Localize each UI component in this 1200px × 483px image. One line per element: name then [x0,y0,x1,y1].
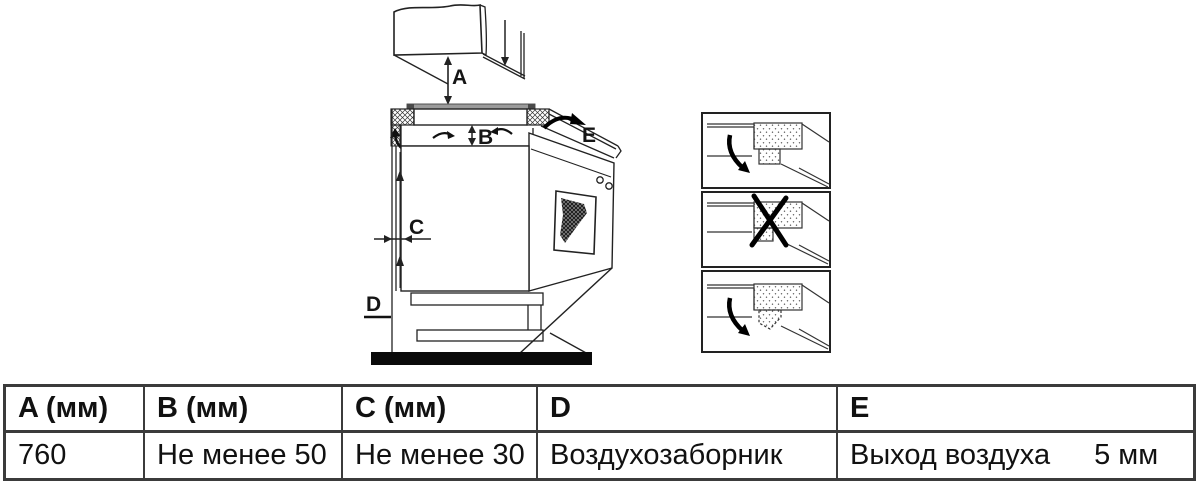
table-cell-e: Выход воздуха 5 мм [838,433,1193,478]
worktop-cross-section-right [527,109,549,125]
table-cell-c: Не менее 30 [343,433,538,478]
table-cell-e-text: Выход воздуха [850,439,1050,472]
table-cell-b: Не менее 50 [145,433,343,478]
label-d: D [366,293,381,316]
floor-line [371,352,592,365]
detail-panel-chamfer-correct [702,271,830,352]
table-header-c: C (мм) [343,387,538,433]
table-cell-e-value: 5 мм [1094,439,1158,472]
detail-panel-flush-incorrect [702,192,830,267]
worktop-cross-section-left [391,109,414,125]
label-a: A [452,66,467,89]
dimensions-table: A (мм) B (мм) C (мм) D E 760 Не менее 50… [3,384,1196,481]
label-c: C [409,216,424,239]
detail-panel-gap-correct [702,113,830,188]
installation-diagram: A B [0,0,1200,380]
table-cell-d: Воздухозаборник [538,433,838,478]
installation-manual-page: A B [0,0,1200,483]
hob-trim-left [407,104,414,109]
table-header-b: B (мм) [145,387,343,433]
label-e: E [582,124,596,147]
table-header-d: D [538,387,838,433]
hob-trim-right [528,104,535,109]
table-header-a: A (мм) [6,387,145,433]
oven-drawing [401,133,614,291]
dimension-a-arrow [444,56,452,105]
dimension-b-arrow [468,125,476,146]
table-header-e: E [838,387,1193,433]
table-cell-a: 760 [6,433,145,478]
hob-body [414,109,527,125]
